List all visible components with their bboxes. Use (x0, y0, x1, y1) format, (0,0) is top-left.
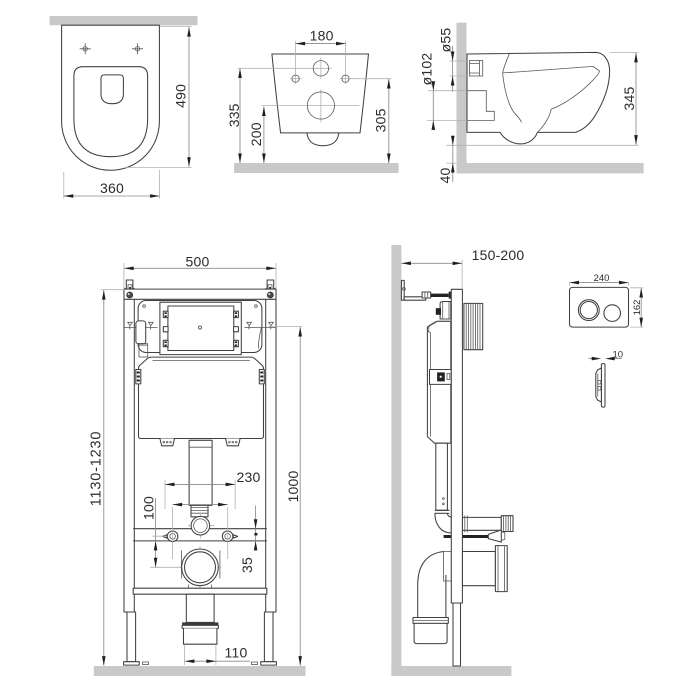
svg-text:335: 335 (226, 103, 242, 127)
svg-text:35: 35 (239, 557, 255, 573)
svg-text:40: 40 (437, 168, 453, 184)
svg-text:110: 110 (225, 645, 248, 661)
svg-text:360: 360 (100, 180, 124, 196)
svg-text:10: 10 (613, 349, 624, 360)
svg-text:490: 490 (173, 84, 189, 108)
svg-text:230: 230 (237, 469, 261, 485)
svg-text:ø55: ø55 (438, 28, 454, 53)
svg-text:1000: 1000 (285, 471, 301, 503)
svg-text:150-200: 150-200 (472, 247, 525, 263)
svg-text:500: 500 (186, 253, 210, 269)
svg-text:305: 305 (373, 108, 389, 132)
svg-text:100: 100 (140, 496, 156, 520)
svg-text:180: 180 (310, 27, 334, 43)
svg-text:345: 345 (621, 87, 637, 111)
svg-text:200: 200 (248, 122, 264, 146)
svg-text:ø102: ø102 (419, 53, 435, 86)
svg-text:162: 162 (632, 300, 643, 316)
svg-text:1130-1230: 1130-1230 (88, 431, 104, 506)
svg-text:240: 240 (594, 273, 610, 284)
